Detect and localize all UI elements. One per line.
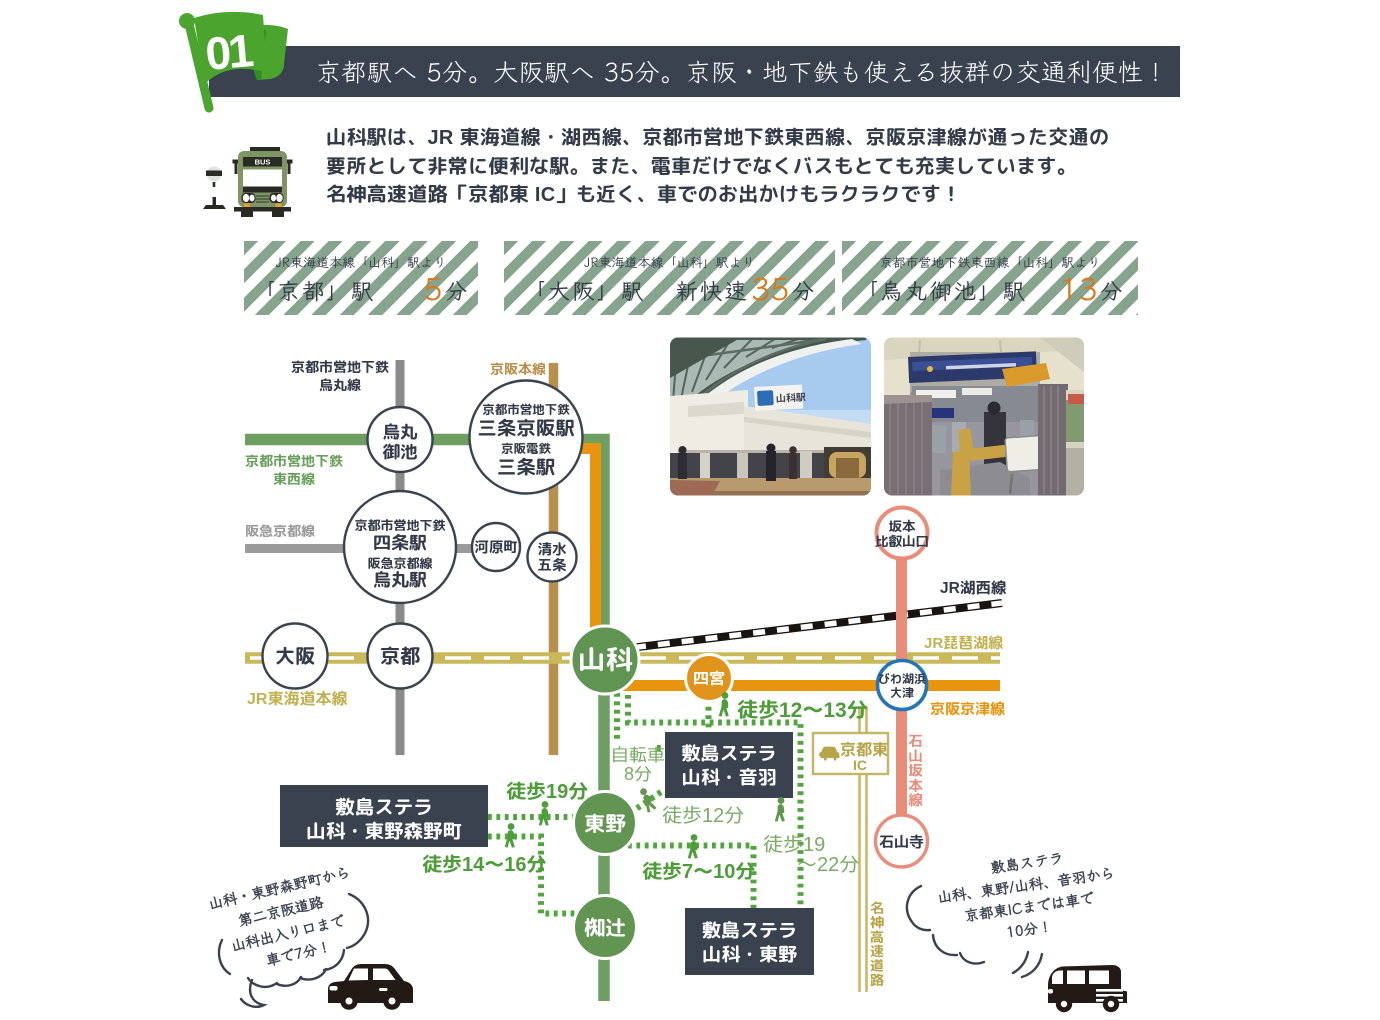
svg-text:徒歩12分: 徒歩12分: [662, 805, 744, 827]
svg-text:山科・東野: 山科・東野: [702, 945, 797, 966]
svg-text:石山坂本線: 石山坂本線: [908, 734, 923, 809]
svg-text:阪急京都線: 阪急京都線: [245, 523, 315, 539]
svg-text:大津: 大津: [890, 686, 914, 700]
svg-text:清水: 清水: [538, 542, 567, 558]
svg-text:徒歩7〜10分: 徒歩7〜10分: [642, 861, 755, 883]
svg-text:京都市営地下鉄: 京都市営地下鉄: [354, 518, 445, 533]
svg-text:IC: IC: [853, 757, 867, 773]
svg-text:山科・東野森野町: 山科・東野森野町: [306, 821, 462, 843]
svg-text:自転車: 自転車: [611, 745, 665, 765]
svg-text:烏丸駅: 烏丸駅: [373, 570, 427, 590]
svg-text:JR琵琶湖線: JR琵琶湖線: [924, 635, 1003, 652]
svg-text:徒歩19: 徒歩19: [763, 834, 825, 856]
svg-text:JR湖西線: JR湖西線: [940, 579, 1007, 597]
svg-text:東野: 東野: [584, 813, 626, 836]
svg-text:四条駅: 四条駅: [373, 533, 427, 553]
svg-text:大阪: 大阪: [275, 646, 315, 668]
svg-text:〜22分: 〜22分: [797, 854, 859, 876]
svg-text:坂本: 坂本: [889, 519, 917, 534]
svg-text:徒歩14〜16分: 徒歩14〜16分: [422, 854, 547, 876]
svg-text:三条京阪駅: 三条京阪駅: [477, 418, 575, 440]
svg-text:石山寺: 石山寺: [879, 834, 924, 851]
svg-text:8分: 8分: [624, 764, 652, 784]
svg-text:四宮: 四宮: [693, 671, 725, 688]
svg-text:JR東海道本線: JR東海道本線: [247, 690, 347, 708]
svg-text:京阪本線: 京阪本線: [490, 361, 546, 377]
svg-text:椥辻: 椥辻: [584, 917, 626, 940]
svg-text:烏丸: 烏丸: [383, 422, 418, 442]
svg-text:京阪京津線: 京阪京津線: [930, 701, 1005, 718]
svg-text:三条駅: 三条駅: [497, 457, 556, 479]
svg-text:山科: 山科: [578, 645, 633, 675]
svg-text:びわ湖浜: びわ湖浜: [878, 672, 926, 686]
svg-text:京阪電鉄: 京阪電鉄: [501, 442, 552, 456]
svg-text:徒歩19分: 徒歩19分: [506, 781, 588, 803]
svg-text:京都: 京都: [380, 646, 420, 668]
svg-text:烏丸線: 烏丸線: [319, 377, 361, 393]
svg-text:徒歩12〜13分: 徒歩12〜13分: [737, 699, 868, 722]
svg-text:敷島ステラ: 敷島ステラ: [681, 743, 776, 765]
svg-text:東西線: 東西線: [273, 471, 315, 487]
svg-text:比叡山口: 比叡山口: [875, 534, 929, 549]
svg-text:河原町: 河原町: [474, 540, 518, 556]
svg-text:京都市営地下鉄: 京都市営地下鉄: [245, 453, 343, 469]
svg-text:京都市営地下鉄: 京都市営地下鉄: [482, 403, 570, 417]
svg-text:敷島ステラ: 敷島ステラ: [702, 920, 797, 942]
svg-text:五条: 五条: [538, 557, 567, 574]
svg-text:山科・音羽: 山科・音羽: [681, 768, 776, 789]
svg-text:山科駅: 山科駅: [776, 391, 807, 405]
svg-text:京都市営地下鉄: 京都市営地下鉄: [291, 359, 389, 375]
svg-text:御池: 御池: [383, 442, 418, 462]
svg-text:名神高速道路: 名神高速道路: [870, 900, 884, 988]
svg-text:敷島ステラ: 敷島ステラ: [335, 797, 433, 819]
svg-text:阪急京都線: 阪急京都線: [367, 556, 432, 571]
